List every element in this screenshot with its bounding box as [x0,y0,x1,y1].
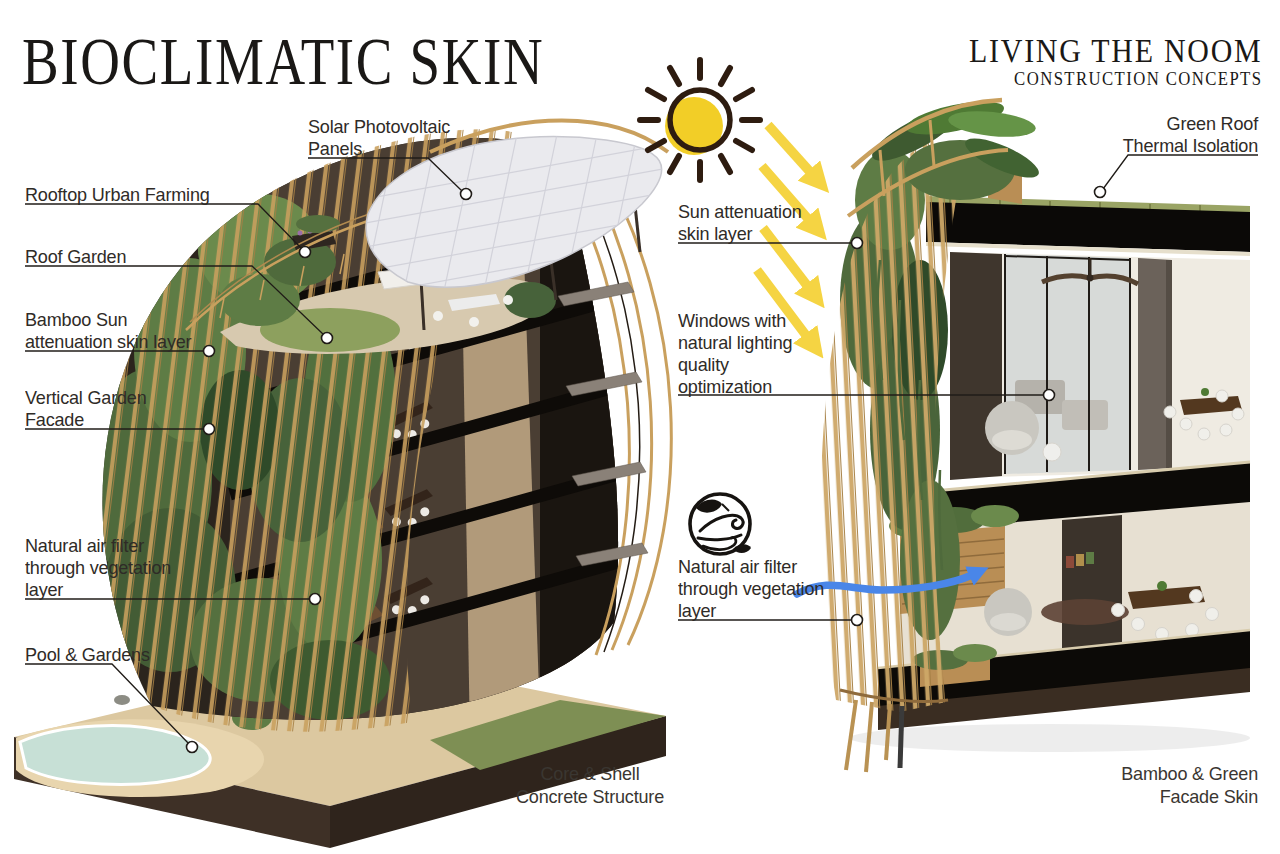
callout-roof-garden: Roof Garden [25,246,126,268]
callout-solar-photovoltaic-panels: Solar Photovoltaic Panels [308,116,450,160]
bamboo-curtain [821,142,964,772]
green-roof [926,196,1250,256]
callout-windows-natural-lighting: Windows with natural lighting quality op… [678,310,792,398]
callout-pool-gardens: Pool & Gardens [25,644,150,666]
brand-subtitle: CONSTRUCTION CONCEPTS [969,69,1262,90]
rooftop-ferns [848,95,1043,216]
right-building-illustration [821,95,1250,772]
caption-bamboo-green-facade-skin: Bamboo & Green Facade Skin [1022,762,1258,808]
callout-bamboo-sun-attenuation-skin: Bamboo Sun attenuation skin layer [25,309,191,353]
callout-rooftop-urban-farming: Rooftop Urban Farming [25,184,210,206]
callout-natural-air-filter-right: Natural air filter through vegetation la… [678,556,824,622]
brand-name: LIVING THE NOOM [969,34,1262,68]
callout-sun-attenuation-skin: Sun attenuation skin layer [678,201,802,245]
wind-leaf-icon [690,494,751,554]
left-building-illustration [14,120,690,848]
poster-canvas: BIOCLIMATIC SKIN LIVING THE NOOM CONSTRU… [0,0,1280,854]
page-title: BIOCLIMATIC SKIN [22,26,544,96]
callout-natural-air-filter-left: Natural air filter through vegetation la… [25,535,171,601]
callout-green-roof-thermal-isolation: Green Roof Thermal Isolation [1068,113,1258,157]
caption-core-shell-concrete-structure: Core & Shell Concrete Structure [448,762,733,808]
brand-block: LIVING THE NOOM CONSTRUCTION CONCEPTS [969,34,1262,90]
callout-vertical-garden-facade: Vertical Garden Facade [25,387,147,431]
